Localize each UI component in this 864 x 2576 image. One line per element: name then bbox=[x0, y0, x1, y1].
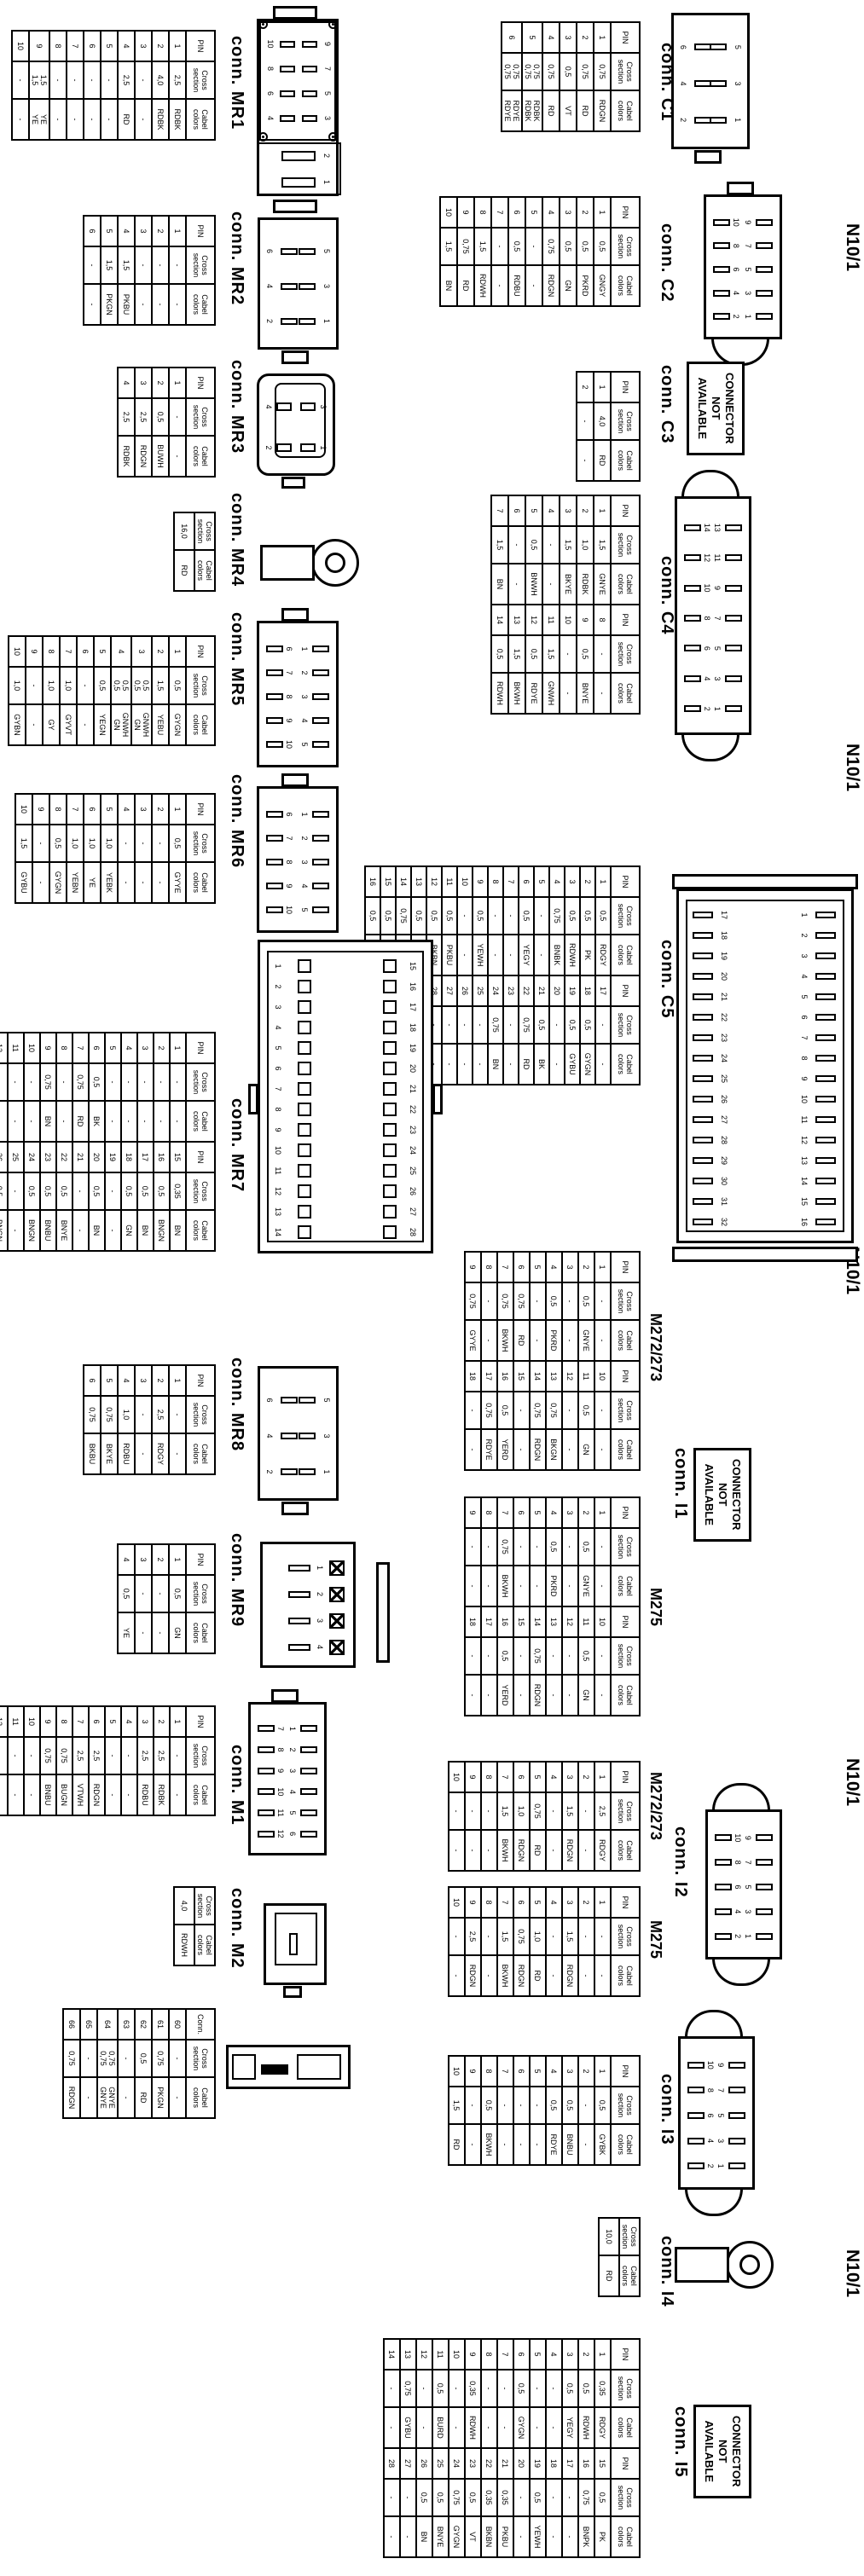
header-cross: Cross section bbox=[186, 61, 215, 99]
cell-color: RDGN bbox=[530, 1675, 546, 1716]
cell-color: RDGN bbox=[513, 1955, 530, 1996]
pin-slot bbox=[756, 1834, 773, 1841]
pin-slot bbox=[266, 883, 283, 889]
cell-cross: 0,5 bbox=[508, 228, 525, 265]
table-sublabel: M275 bbox=[647, 1920, 664, 1959]
cell-pin: 21 bbox=[72, 1142, 89, 1172]
pin-row: 4-- bbox=[546, 1887, 562, 1996]
pin-number: 2 bbox=[264, 312, 274, 331]
pin-slot bbox=[815, 1219, 836, 1225]
header-colors: Cabel colors bbox=[611, 2124, 640, 2165]
cell-pin: 3 bbox=[562, 2339, 578, 2370]
cell-cross: 0,5 bbox=[525, 635, 542, 673]
cell-cross: 0,75 bbox=[519, 1006, 534, 1044]
cell-color: - bbox=[152, 1612, 169, 1653]
ring-eye bbox=[311, 539, 359, 587]
cell-pin: 11 bbox=[442, 866, 457, 897]
cell-color: BNWH bbox=[525, 564, 542, 605]
cell-cross: 0,5 bbox=[94, 667, 111, 704]
header-cross: Cross section bbox=[611, 635, 640, 673]
cell-cross: - bbox=[170, 1063, 186, 1101]
cell-color: - bbox=[77, 704, 94, 745]
latch-tab bbox=[727, 182, 754, 195]
mount-wing bbox=[432, 1084, 443, 1114]
pin-row: 20,5GNYE110,5GN bbox=[578, 1252, 594, 1470]
pin-slot bbox=[713, 313, 730, 320]
pin-slot bbox=[815, 1198, 836, 1205]
cell-pin: 23 bbox=[40, 1142, 56, 1172]
pin-slot bbox=[281, 248, 298, 255]
cell-pin: 6 bbox=[513, 1887, 530, 1918]
pin-slot bbox=[281, 1397, 298, 1404]
pin-slot bbox=[288, 1618, 310, 1624]
pin-row: 62,5RDGN bbox=[89, 1706, 105, 1815]
pin-slot bbox=[815, 1157, 836, 1164]
pin-slot bbox=[693, 1014, 713, 1021]
pin-slot bbox=[684, 675, 701, 682]
pin-table: PINCross sectionCabel colors12,5RDBK24,0… bbox=[11, 30, 216, 141]
header-pin: PIN bbox=[611, 2448, 640, 2479]
cell-pin: 15 bbox=[513, 1606, 530, 1637]
pin-number: 13 bbox=[712, 518, 722, 537]
pin-slot bbox=[693, 1075, 713, 1082]
cell-color: GY bbox=[43, 704, 60, 745]
pin-number: 17 bbox=[719, 906, 728, 924]
table-header-row: PINCross sectionCabel colors bbox=[186, 31, 215, 140]
cell-color: PKRD bbox=[577, 265, 594, 306]
cell-cross: 0,5 bbox=[530, 2479, 546, 2516]
end-rail bbox=[672, 874, 858, 889]
cell-pin: 5 bbox=[530, 1252, 546, 1282]
cell-color: BKWH bbox=[497, 1566, 513, 1606]
cell-color: - bbox=[8, 1210, 24, 1251]
cell-color: RDYE RDYE bbox=[502, 90, 522, 131]
cell-pin: 2 bbox=[577, 22, 594, 53]
cell-pin: 6 bbox=[513, 1762, 530, 1792]
pin-row: 71,5BKWH bbox=[497, 1762, 513, 1871]
pin-row: 8--240,75BN bbox=[488, 866, 503, 1085]
connector-title-mr3: conn. MR3 bbox=[227, 360, 246, 454]
table-header-row: PINCross sectionCabel colors bbox=[186, 794, 215, 903]
cell-color: RD bbox=[118, 99, 135, 140]
cell-cross: - bbox=[546, 1637, 562, 1675]
pin-slot bbox=[266, 811, 283, 818]
cell-pin: 26 bbox=[416, 2448, 432, 2479]
header-cross: Cross section bbox=[611, 402, 640, 440]
cell-color: RD bbox=[530, 1955, 546, 1996]
cell-pin: 2 bbox=[152, 636, 169, 667]
cell-color: - bbox=[135, 1612, 152, 1653]
pin-number: 16 bbox=[799, 1213, 809, 1231]
pin-number: 10 bbox=[731, 213, 740, 232]
cell-color: - bbox=[465, 1830, 481, 1871]
cell-color: GNYE GNYE bbox=[97, 2077, 118, 2118]
pin-number: 10 bbox=[705, 2056, 715, 2075]
cell-color: GYGN bbox=[169, 704, 186, 745]
terminal-body bbox=[260, 545, 315, 581]
pin-number: 5 bbox=[287, 1803, 297, 1822]
cell-pin: 22 bbox=[481, 2448, 497, 2479]
pin-row: 2-- bbox=[578, 2056, 594, 2165]
pin-number: 10 bbox=[733, 1828, 742, 1847]
cell-cross: - bbox=[481, 1637, 497, 1675]
cell-pin: 12 bbox=[562, 1361, 578, 1392]
cell-cross: - bbox=[530, 2370, 546, 2407]
pin-number: 9 bbox=[712, 579, 722, 598]
pin-row: 50,5YEGN bbox=[94, 636, 111, 745]
pin-row: 1--10-- bbox=[594, 1497, 611, 1716]
pin-slot bbox=[281, 1433, 298, 1439]
pin-row: 60,75 0,75RDYE RDYE bbox=[502, 22, 522, 131]
pin-number: 1 bbox=[322, 312, 331, 331]
pin-number: 5 bbox=[322, 242, 331, 261]
pin-row: 1-- bbox=[169, 216, 186, 325]
cell-color: - bbox=[105, 1101, 121, 1142]
pin-row: 14--28-- bbox=[384, 2339, 400, 2557]
cell-cross: 0,75 bbox=[72, 1063, 89, 1101]
cell-color: - bbox=[491, 265, 508, 306]
pin-number: 5 bbox=[299, 900, 309, 919]
pin-row: 12--260,5BNGN bbox=[0, 1033, 8, 1251]
pin-row: 60,5RDBU bbox=[508, 197, 525, 306]
cell-pin: 10 bbox=[449, 2339, 465, 2370]
pin-number: 31 bbox=[719, 1192, 728, 1211]
pin-table: PINCross sectionCabel colors10,5GNGY20,5… bbox=[439, 196, 641, 307]
table-header-row: PINCross sectionCabel colors bbox=[186, 636, 215, 745]
pin-row: 81,5RDWH bbox=[474, 197, 491, 306]
cell-color: GNWH GN bbox=[131, 704, 152, 745]
cell-cross: 1,5 bbox=[508, 635, 525, 673]
pin-slot bbox=[756, 266, 773, 273]
cell-cross: - bbox=[562, 2479, 578, 2516]
cell-pin: 11 bbox=[578, 1361, 594, 1392]
cell-color: RDBK bbox=[152, 99, 169, 140]
pin-number: 7 bbox=[743, 1853, 752, 1872]
cell-color: YEBU bbox=[152, 704, 169, 745]
cell-color: - bbox=[530, 1320, 546, 1361]
connector-not-available-box: CONNECTOR NOT AVAILABLE bbox=[687, 362, 745, 455]
pin-slot bbox=[694, 117, 711, 124]
cell-pin: 3 bbox=[135, 1365, 152, 1396]
pin-number: 7 bbox=[712, 609, 722, 628]
cell-color: BNYE bbox=[432, 2516, 449, 2557]
cell-color: - bbox=[594, 1675, 611, 1716]
cell-cross: - bbox=[465, 1792, 481, 1830]
connector-title-c3: conn. C3 bbox=[657, 365, 676, 443]
end-bracket bbox=[273, 200, 317, 213]
cell-cross: 0,75 bbox=[56, 1737, 72, 1774]
cell-color: RDBK bbox=[118, 436, 135, 477]
header-cross: Cross section bbox=[186, 1172, 215, 1210]
cell-color: - bbox=[135, 284, 152, 325]
pin-number: 9 bbox=[743, 213, 752, 232]
pin-table: PINCross sectionCabel colors10,5GN2--3--… bbox=[117, 1543, 216, 1654]
cell-pin: 1 bbox=[594, 22, 611, 53]
cell-color: - bbox=[449, 2407, 465, 2448]
pin-row: 130,75GYBU27-- bbox=[400, 2339, 416, 2557]
pin-slot bbox=[289, 1933, 298, 1955]
cell-color: GYGN bbox=[449, 2516, 465, 2557]
connector-title-mr2: conn. MR2 bbox=[227, 211, 246, 305]
pin-number: 2 bbox=[733, 1927, 742, 1946]
pin-number: 26 bbox=[719, 1090, 728, 1109]
cell-color: - bbox=[578, 1830, 594, 1871]
cell-color: BN bbox=[89, 1210, 105, 1251]
cell-cross: - bbox=[449, 2370, 465, 2407]
pin-row: 3--170,5BN bbox=[137, 1033, 154, 1251]
cell-pin: 3 bbox=[135, 216, 152, 246]
pin-slot bbox=[725, 554, 742, 561]
cell-pin: 3 bbox=[560, 197, 577, 228]
cell-cross: - bbox=[135, 825, 152, 862]
pin-number: 3 bbox=[322, 277, 331, 296]
cell-color: - bbox=[457, 1044, 473, 1085]
cell-color: - bbox=[121, 1774, 137, 1815]
pin-number: 3 bbox=[799, 946, 809, 965]
cell-color: RDBK bbox=[154, 1774, 170, 1815]
cell-color: BKYE bbox=[101, 1433, 118, 1474]
pin-slot bbox=[383, 1184, 397, 1198]
cell-cross: - bbox=[118, 825, 135, 862]
pin-slot bbox=[266, 835, 283, 842]
header-pin: PIN bbox=[186, 368, 215, 398]
cell-color: - bbox=[24, 1774, 40, 1815]
pin-slot bbox=[693, 1055, 713, 1062]
cell-pin: 1 bbox=[594, 2056, 611, 2087]
cell-pin: 19 bbox=[530, 2448, 546, 2479]
cell-cross: 0,75 bbox=[84, 1396, 101, 1433]
cell-pin: 12 bbox=[426, 866, 442, 897]
cell-cross: - bbox=[105, 1737, 121, 1774]
pin-row: 30,5RDWH190,5GYBU bbox=[565, 866, 580, 1085]
cell-pin: 13 bbox=[508, 605, 525, 635]
pin-number: 2 bbox=[731, 307, 740, 326]
cell-color: BNBU bbox=[40, 1210, 56, 1251]
table-sublabel: M272/273 bbox=[647, 1772, 664, 1840]
pin-row: 11--25-- bbox=[8, 1033, 24, 1251]
cell-pin: 20 bbox=[89, 1142, 105, 1172]
cell-cross: 0,5 bbox=[534, 1006, 549, 1044]
cell-color: RDBK bbox=[169, 99, 186, 140]
cell-color: BNBU bbox=[562, 2124, 578, 2165]
cell-cross: 0,5 bbox=[152, 398, 169, 436]
cell-pin: 4 bbox=[121, 1033, 137, 1063]
cell-color: PKBU bbox=[442, 935, 457, 975]
cell-cross: - bbox=[562, 1637, 578, 1675]
cell-color: RDWH bbox=[465, 2407, 481, 2448]
cell-pin: 2 bbox=[578, 1252, 594, 1282]
cell-cross: 1,5 bbox=[15, 825, 32, 862]
cell-color: - bbox=[24, 1101, 40, 1142]
cell-pin: 1 bbox=[594, 2339, 611, 2370]
cell-cross: 0,75 bbox=[40, 1737, 56, 1774]
cell-color: GYBN bbox=[9, 704, 26, 745]
pin-number: 6 bbox=[705, 2106, 715, 2125]
cell-color: - bbox=[400, 2516, 416, 2557]
cell-pin: 10 bbox=[440, 197, 457, 228]
pin-slot bbox=[693, 1198, 713, 1205]
pin-table: PINCross sectionCabel colors14,0RD2-- bbox=[576, 371, 641, 482]
header-cross: Cross section bbox=[186, 1063, 215, 1101]
pin-row: 40,5 0,5GNWH GN bbox=[111, 636, 131, 745]
cell-pin: 1 bbox=[594, 1762, 611, 1792]
cell-cross: - bbox=[24, 1063, 40, 1101]
header-cross: Cross section bbox=[186, 1737, 215, 1774]
cell-color: - bbox=[594, 1566, 611, 1606]
pin-row: 70,75BKWH160,5YERD bbox=[497, 1252, 513, 1470]
pin-row: 4-- bbox=[118, 794, 135, 903]
cell-cross: - bbox=[400, 2479, 416, 2516]
pin-number: 1 bbox=[322, 173, 331, 192]
pin-number: 10 bbox=[265, 35, 275, 54]
pin-number: 5 bbox=[322, 84, 332, 103]
cell-color: GN bbox=[121, 1210, 137, 1251]
cell-pin: 4 bbox=[118, 368, 135, 398]
pin-table: PINCross sectionCabel colors10,5GYYE2--3… bbox=[14, 793, 216, 904]
end-rail bbox=[672, 1247, 858, 1262]
cell-color: - bbox=[513, 2516, 530, 2557]
pin-row: 31,5RDGN bbox=[562, 1887, 578, 1996]
cell-pin: 5 bbox=[101, 1365, 118, 1396]
pin-slot bbox=[815, 912, 836, 918]
pin-number: 12 bbox=[702, 548, 711, 567]
cell-pin: 10 bbox=[15, 794, 32, 825]
cell-pin: 13 bbox=[411, 866, 426, 897]
cell-pin: 61 bbox=[152, 2009, 169, 2040]
cell-pin: 3 bbox=[562, 2056, 578, 2087]
pin-slot bbox=[266, 906, 283, 913]
header-pin: PIN bbox=[186, 636, 215, 667]
cell-color: - bbox=[481, 1320, 497, 1361]
pin-number: 4 bbox=[678, 74, 687, 93]
cell-color: RDGN bbox=[562, 1955, 578, 1996]
cell-cross: - bbox=[12, 61, 29, 99]
cell-cross: 0,5 bbox=[565, 897, 580, 935]
cell-color: GYGN bbox=[513, 2407, 530, 2448]
pin-table: Cross sectionCabel colors4,0RDWH bbox=[173, 1886, 216, 1966]
component-label-n10-1: N10/1 bbox=[842, 223, 862, 271]
cell-pin: 3 bbox=[565, 866, 580, 897]
pin-slot bbox=[298, 1184, 311, 1198]
header-cross: Cross section bbox=[194, 1887, 215, 1925]
pin-slot bbox=[281, 177, 316, 188]
header-colors: Cabel colors bbox=[186, 862, 215, 903]
pin-slot bbox=[815, 1178, 836, 1184]
pin-number: 1 bbox=[315, 1559, 324, 1577]
cell-pin: 13 bbox=[546, 1361, 562, 1392]
cell-pin: 2 bbox=[154, 1706, 170, 1737]
header-colors: Cabel colors bbox=[611, 1675, 640, 1716]
cell-cross: 0,5 bbox=[525, 526, 542, 564]
pin-row: 610,75PKGN bbox=[152, 2009, 169, 2118]
cell-cross: 0,5 bbox=[562, 2087, 578, 2124]
cell-color: GYGN bbox=[49, 862, 67, 903]
header-cross: Cross section bbox=[194, 512, 215, 550]
cell-pin: 7 bbox=[491, 197, 508, 228]
cell-cross: 0,5 bbox=[580, 897, 595, 935]
cell-cross: 0,75 bbox=[513, 1918, 530, 1955]
cell-color: RDWH bbox=[491, 673, 508, 714]
pin-row: 50,5BNWH120,5RDYE bbox=[525, 495, 542, 714]
pin-number: 2 bbox=[322, 147, 331, 165]
cell-pin: 7 bbox=[60, 636, 77, 667]
pin-row: 10--26-- bbox=[457, 866, 473, 1085]
pin-number: 18 bbox=[719, 926, 728, 945]
cell-pin: 20 bbox=[513, 2448, 530, 2479]
pin-number: 4 bbox=[299, 877, 309, 895]
pin-slot bbox=[710, 43, 727, 50]
pin-row: 10-- bbox=[449, 1887, 465, 1996]
cell-pin: 3 bbox=[135, 794, 152, 825]
cell-color: VT bbox=[560, 90, 577, 131]
cell-pin: 24 bbox=[449, 2448, 465, 2479]
pin-number: 1 bbox=[273, 957, 282, 975]
cell-color: - bbox=[497, 2407, 513, 2448]
cell-color: - bbox=[513, 1566, 530, 1606]
cell-color: PK bbox=[580, 935, 595, 975]
cell-cross: 0,75 bbox=[449, 2479, 465, 2516]
pin-row: 3-- bbox=[135, 1365, 152, 1474]
cell-cross: 2,5 bbox=[118, 398, 135, 436]
pin-slot bbox=[728, 2112, 745, 2119]
pin-slot bbox=[258, 1788, 275, 1795]
pin-number: 11 bbox=[273, 1161, 282, 1180]
cell-cross: 0,75 bbox=[542, 53, 560, 90]
pin-row: 110,5BURD250,5BNYE bbox=[432, 2339, 449, 2557]
cell-pin: 1 bbox=[170, 1033, 186, 1063]
cell-color: - bbox=[465, 2124, 481, 2165]
pin-row: 10--240,5BNGN bbox=[24, 1033, 40, 1251]
header-cross: Cross section bbox=[611, 1792, 640, 1830]
connector-title-i1: conn. I1 bbox=[670, 1448, 690, 1520]
pin-number: 9 bbox=[743, 1828, 752, 1847]
cell-pin: 7 bbox=[497, 1762, 513, 1792]
pin-row: 9-- bbox=[465, 1762, 481, 1871]
connector-title-m2: conn. M2 bbox=[227, 1888, 246, 1969]
cell-cross: 2,5 bbox=[137, 1737, 154, 1774]
cell-pin: 18 bbox=[546, 2448, 562, 2479]
cell-cross: 1,5 bbox=[560, 526, 577, 564]
cell-cross: - bbox=[152, 825, 169, 862]
pin-row: 101,5GYBU bbox=[15, 794, 32, 903]
cell-pin: 6 bbox=[89, 1706, 105, 1737]
pin-row: 2--160,5BNGN bbox=[154, 1033, 170, 1251]
cell-pin: 8 bbox=[56, 1706, 72, 1737]
cell-pin: 2 bbox=[578, 1762, 594, 1792]
cell-pin: 19 bbox=[565, 975, 580, 1006]
header-cross: Cross section bbox=[611, 1528, 640, 1566]
cell-pin: 23 bbox=[503, 975, 519, 1006]
pin-number: 5 bbox=[716, 2106, 725, 2125]
cell-pin: 5 bbox=[525, 495, 542, 526]
table-header-row: PINCross sectionCabel colors bbox=[611, 1887, 640, 1996]
connector-title-i2: conn. I2 bbox=[670, 1826, 690, 1898]
cell-color: RD bbox=[449, 2124, 465, 2165]
pin-number: 4 bbox=[264, 397, 273, 416]
pin-number: 7 bbox=[273, 1080, 282, 1098]
cell-color: BUWH bbox=[152, 436, 169, 477]
pin-slot bbox=[383, 1205, 397, 1219]
pin-slot bbox=[715, 1933, 732, 1940]
header-cross: Cross section bbox=[611, 2087, 640, 2124]
cell-pin: 2 bbox=[578, 1497, 594, 1528]
pin-slot bbox=[258, 1746, 275, 1753]
cell-pin: 10 bbox=[449, 1887, 465, 1918]
pin-number: 28 bbox=[719, 1131, 728, 1149]
cell-pin: 1 bbox=[169, 1544, 186, 1575]
pin-row: 7--23-- bbox=[503, 866, 519, 1085]
cell-cross: - bbox=[594, 1282, 611, 1320]
